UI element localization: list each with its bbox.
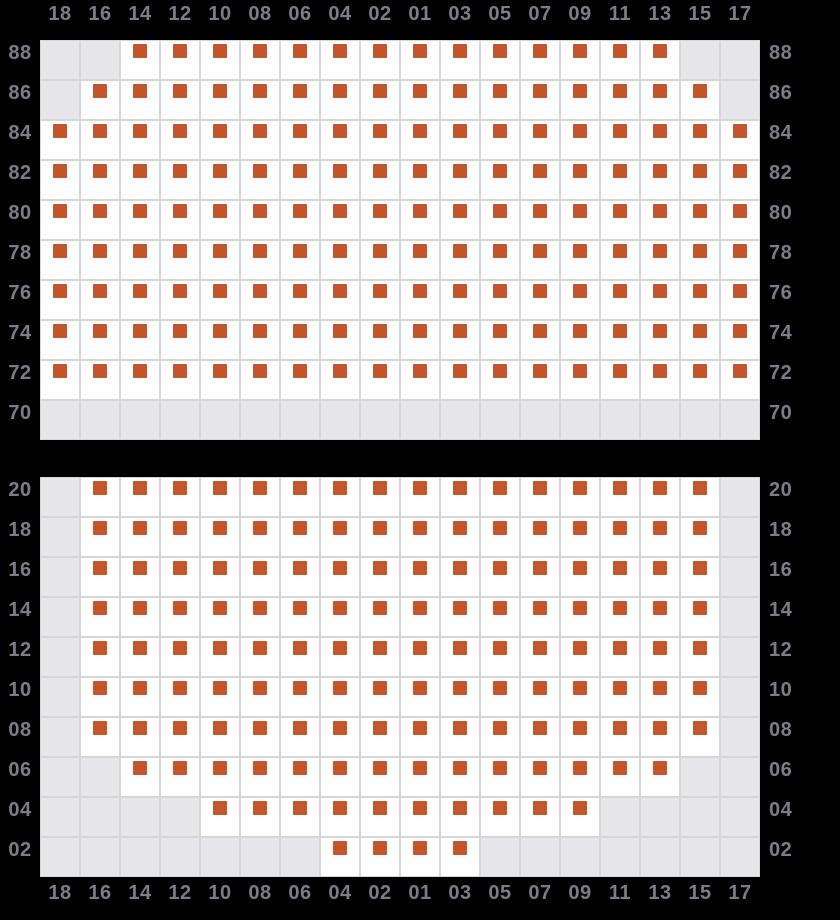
seat-cell[interactable]: [320, 120, 360, 160]
seat-cell[interactable]: [400, 40, 440, 80]
seat-cell[interactable]: [80, 557, 120, 597]
seat-cell[interactable]: [240, 597, 280, 637]
seat-cell[interactable]: [240, 200, 280, 240]
seat-cell[interactable]: [600, 160, 640, 200]
seat-cell[interactable]: [520, 517, 560, 557]
seat-cell[interactable]: [720, 240, 760, 280]
seat-cell[interactable]: [600, 677, 640, 717]
seat-cell[interactable]: [520, 120, 560, 160]
seat-cell[interactable]: [80, 160, 120, 200]
seat-cell[interactable]: [200, 517, 240, 557]
seat-cell[interactable]: [200, 557, 240, 597]
seat-cell[interactable]: [400, 80, 440, 120]
seat-cell[interactable]: [280, 677, 320, 717]
seat-cell[interactable]: [520, 477, 560, 517]
seat-cell[interactable]: [560, 637, 600, 677]
seat-cell[interactable]: [320, 80, 360, 120]
seat-cell[interactable]: [80, 280, 120, 320]
seat-cell[interactable]: [680, 280, 720, 320]
seat-cell[interactable]: [120, 200, 160, 240]
seat-cell[interactable]: [240, 320, 280, 360]
seat-cell[interactable]: [160, 557, 200, 597]
seat-cell[interactable]: [200, 240, 240, 280]
seat-cell[interactable]: [320, 240, 360, 280]
seat-cell[interactable]: [360, 80, 400, 120]
seat-cell[interactable]: [600, 200, 640, 240]
seat-cell[interactable]: [440, 160, 480, 200]
seat-cell[interactable]: [520, 160, 560, 200]
seat-cell[interactable]: [200, 320, 240, 360]
seat-cell[interactable]: [560, 677, 600, 717]
seat-cell[interactable]: [440, 120, 480, 160]
seat-cell[interactable]: [360, 360, 400, 400]
seat-cell[interactable]: [40, 160, 80, 200]
seat-cell[interactable]: [280, 40, 320, 80]
seat-cell[interactable]: [680, 477, 720, 517]
seat-cell[interactable]: [320, 677, 360, 717]
seat-cell[interactable]: [600, 517, 640, 557]
seat-cell[interactable]: [720, 160, 760, 200]
seat-cell[interactable]: [40, 240, 80, 280]
seat-cell[interactable]: [320, 200, 360, 240]
seat-cell[interactable]: [680, 677, 720, 717]
seat-cell[interactable]: [480, 517, 520, 557]
seat-cell[interactable]: [680, 120, 720, 160]
seat-cell[interactable]: [480, 280, 520, 320]
seat-cell[interactable]: [640, 477, 680, 517]
seat-cell[interactable]: [480, 797, 520, 837]
seat-cell[interactable]: [240, 757, 280, 797]
seat-cell[interactable]: [720, 200, 760, 240]
seat-cell[interactable]: [720, 280, 760, 320]
seat-cell[interactable]: [80, 517, 120, 557]
seat-cell[interactable]: [560, 160, 600, 200]
seat-cell[interactable]: [480, 637, 520, 677]
seat-cell[interactable]: [160, 280, 200, 320]
seat-cell[interactable]: [520, 80, 560, 120]
seat-cell[interactable]: [200, 797, 240, 837]
seat-cell[interactable]: [280, 360, 320, 400]
seat-cell[interactable]: [600, 40, 640, 80]
seat-cell[interactable]: [520, 240, 560, 280]
seat-cell[interactable]: [600, 717, 640, 757]
seat-cell[interactable]: [640, 517, 680, 557]
seat-cell[interactable]: [640, 120, 680, 160]
seat-cell[interactable]: [640, 717, 680, 757]
seat-cell[interactable]: [400, 360, 440, 400]
seat-cell[interactable]: [560, 320, 600, 360]
seat-cell[interactable]: [400, 280, 440, 320]
seat-cell[interactable]: [720, 120, 760, 160]
seat-cell[interactable]: [280, 597, 320, 637]
seat-cell[interactable]: [480, 160, 520, 200]
seat-cell[interactable]: [720, 360, 760, 400]
seat-cell[interactable]: [360, 837, 400, 877]
seat-cell[interactable]: [120, 557, 160, 597]
seat-cell[interactable]: [80, 120, 120, 160]
seat-cell[interactable]: [640, 40, 680, 80]
seat-cell[interactable]: [600, 597, 640, 637]
seat-cell[interactable]: [560, 80, 600, 120]
seat-cell[interactable]: [600, 477, 640, 517]
seat-cell[interactable]: [320, 557, 360, 597]
seat-cell[interactable]: [120, 120, 160, 160]
seat-cell[interactable]: [640, 280, 680, 320]
seat-cell[interactable]: [320, 837, 360, 877]
seat-cell[interactable]: [520, 360, 560, 400]
seat-cell[interactable]: [560, 477, 600, 517]
seat-cell[interactable]: [120, 160, 160, 200]
seat-cell[interactable]: [280, 280, 320, 320]
seat-cell[interactable]: [680, 240, 720, 280]
seat-cell[interactable]: [680, 160, 720, 200]
seat-cell[interactable]: [240, 120, 280, 160]
seat-cell[interactable]: [120, 517, 160, 557]
seat-cell[interactable]: [640, 637, 680, 677]
seat-cell[interactable]: [640, 557, 680, 597]
seat-cell[interactable]: [400, 757, 440, 797]
seat-cell[interactable]: [520, 40, 560, 80]
seat-cell[interactable]: [480, 320, 520, 360]
seat-cell[interactable]: [280, 200, 320, 240]
seat-cell[interactable]: [680, 320, 720, 360]
seat-cell[interactable]: [200, 200, 240, 240]
seat-cell[interactable]: [160, 40, 200, 80]
seat-cell[interactable]: [560, 240, 600, 280]
seat-cell[interactable]: [440, 80, 480, 120]
seat-cell[interactable]: [560, 717, 600, 757]
seat-cell[interactable]: [240, 160, 280, 200]
seat-cell[interactable]: [600, 240, 640, 280]
seat-cell[interactable]: [600, 320, 640, 360]
seat-cell[interactable]: [600, 80, 640, 120]
seat-cell[interactable]: [440, 517, 480, 557]
seat-cell[interactable]: [40, 200, 80, 240]
seat-cell[interactable]: [680, 517, 720, 557]
seat-cell[interactable]: [240, 797, 280, 837]
seat-cell[interactable]: [200, 280, 240, 320]
seat-cell[interactable]: [160, 637, 200, 677]
seat-cell[interactable]: [160, 360, 200, 400]
seat-cell[interactable]: [680, 717, 720, 757]
seat-cell[interactable]: [80, 200, 120, 240]
seat-cell[interactable]: [160, 200, 200, 240]
seat-cell[interactable]: [360, 517, 400, 557]
seat-cell[interactable]: [80, 240, 120, 280]
seat-cell[interactable]: [480, 360, 520, 400]
seat-cell[interactable]: [240, 677, 280, 717]
seat-cell[interactable]: [360, 797, 400, 837]
seat-cell[interactable]: [280, 717, 320, 757]
seat-cell[interactable]: [440, 360, 480, 400]
seat-cell[interactable]: [560, 360, 600, 400]
seat-cell[interactable]: [160, 517, 200, 557]
seat-cell[interactable]: [200, 637, 240, 677]
upper-seat-grid: [40, 40, 760, 440]
seat-cell[interactable]: [400, 517, 440, 557]
seat-cell[interactable]: [480, 557, 520, 597]
seat-cell[interactable]: [600, 757, 640, 797]
seat-cell[interactable]: [120, 477, 160, 517]
seat-cell[interactable]: [440, 797, 480, 837]
seat-cell[interactable]: [440, 557, 480, 597]
seat-cell[interactable]: [440, 717, 480, 757]
seat-cell[interactable]: [360, 160, 400, 200]
seat-cell[interactable]: [680, 360, 720, 400]
seat-cell[interactable]: [480, 677, 520, 717]
seat-cell[interactable]: [600, 120, 640, 160]
seat-cell[interactable]: [400, 477, 440, 517]
seat-cell[interactable]: [360, 240, 400, 280]
seat-cell[interactable]: [160, 80, 200, 120]
seat-cell[interactable]: [120, 757, 160, 797]
seat-cell[interactable]: [520, 757, 560, 797]
seat-cell[interactable]: [560, 120, 600, 160]
seat-cell[interactable]: [360, 637, 400, 677]
seat-cell[interactable]: [520, 557, 560, 597]
seat-cell[interactable]: [240, 557, 280, 597]
seat-cell[interactable]: [200, 40, 240, 80]
seat-cell[interactable]: [80, 360, 120, 400]
seat-cell[interactable]: [320, 320, 360, 360]
seat-cell[interactable]: [240, 637, 280, 677]
seat-cell[interactable]: [320, 477, 360, 517]
seat-cell[interactable]: [160, 717, 200, 757]
seat-cell[interactable]: [360, 120, 400, 160]
seat-marker-icon: [613, 681, 627, 695]
seat-cell[interactable]: [400, 797, 440, 837]
seat-cell[interactable]: [440, 320, 480, 360]
seat-cell[interactable]: [360, 40, 400, 80]
seat-cell[interactable]: [240, 80, 280, 120]
seat-cell[interactable]: [440, 200, 480, 240]
seat-cell[interactable]: [120, 360, 160, 400]
seat-cell[interactable]: [360, 477, 400, 517]
seat-cell[interactable]: [400, 120, 440, 160]
seat-cell[interactable]: [440, 757, 480, 797]
seat-cell[interactable]: [400, 557, 440, 597]
seat-cell[interactable]: [320, 40, 360, 80]
seat-cell[interactable]: [520, 200, 560, 240]
seat-cell[interactable]: [240, 517, 280, 557]
seat-cell[interactable]: [200, 677, 240, 717]
seat-cell[interactable]: [560, 517, 600, 557]
seat-cell[interactable]: [160, 477, 200, 517]
seat-cell[interactable]: [400, 240, 440, 280]
seat-cell[interactable]: [320, 160, 360, 200]
seat-cell[interactable]: [640, 757, 680, 797]
seat-cell[interactable]: [400, 320, 440, 360]
seat-cell[interactable]: [200, 80, 240, 120]
seat-cell[interactable]: [320, 757, 360, 797]
seat-cell[interactable]: [560, 280, 600, 320]
seat-cell[interactable]: [400, 837, 440, 877]
seat-cell[interactable]: [240, 360, 280, 400]
seat-cell[interactable]: [120, 40, 160, 80]
seat-cell[interactable]: [640, 320, 680, 360]
seat-cell[interactable]: [440, 677, 480, 717]
seat-cell[interactable]: [680, 80, 720, 120]
seat-cell[interactable]: [400, 597, 440, 637]
seat-cell[interactable]: [440, 637, 480, 677]
seat-cell[interactable]: [520, 597, 560, 637]
seat-cell[interactable]: [120, 717, 160, 757]
seat-cell[interactable]: [40, 280, 80, 320]
seat-cell[interactable]: [360, 200, 400, 240]
seat-cell[interactable]: [240, 717, 280, 757]
seat-cell[interactable]: [160, 160, 200, 200]
seat-cell[interactable]: [440, 837, 480, 877]
seat-cell[interactable]: [360, 280, 400, 320]
seat-cell[interactable]: [40, 320, 80, 360]
seat-cell[interactable]: [480, 477, 520, 517]
seat-cell[interactable]: [80, 677, 120, 717]
seat-cell[interactable]: [600, 557, 640, 597]
seat-cell[interactable]: [200, 717, 240, 757]
seat-cell[interactable]: [440, 477, 480, 517]
seat-cell[interactable]: [320, 360, 360, 400]
seat-cell[interactable]: [280, 80, 320, 120]
seat-cell[interactable]: [200, 160, 240, 200]
seat-cell[interactable]: [320, 717, 360, 757]
seat-cell[interactable]: [640, 597, 680, 637]
seat-cell[interactable]: [520, 677, 560, 717]
seat-cell[interactable]: [40, 120, 80, 160]
seat-cell[interactable]: [280, 240, 320, 280]
seat-cell[interactable]: [640, 160, 680, 200]
seat-cell[interactable]: [480, 717, 520, 757]
seat-cell[interactable]: [400, 637, 440, 677]
seat-cell[interactable]: [240, 280, 280, 320]
seat-cell[interactable]: [600, 280, 640, 320]
seat-cell[interactable]: [160, 240, 200, 280]
seat-cell[interactable]: [280, 320, 320, 360]
seat-cell[interactable]: [200, 477, 240, 517]
row-label: 06: [0, 757, 40, 797]
seat-cell[interactable]: [400, 677, 440, 717]
seat-cell[interactable]: [520, 280, 560, 320]
seat-cell[interactable]: [80, 477, 120, 517]
seat-cell[interactable]: [480, 240, 520, 280]
seat-cell[interactable]: [80, 637, 120, 677]
seat-cell[interactable]: [480, 120, 520, 160]
seat-cell[interactable]: [440, 40, 480, 80]
seat-cell[interactable]: [240, 477, 280, 517]
seat-cell[interactable]: [400, 200, 440, 240]
seat-cell[interactable]: [720, 320, 760, 360]
seat-cell[interactable]: [600, 637, 640, 677]
seat-cell[interactable]: [480, 80, 520, 120]
seat-cell[interactable]: [280, 120, 320, 160]
seat-cell[interactable]: [280, 557, 320, 597]
seat-cell[interactable]: [560, 597, 600, 637]
seat-cell[interactable]: [320, 797, 360, 837]
seat-cell[interactable]: [160, 757, 200, 797]
seat-cell[interactable]: [120, 240, 160, 280]
seat-cell[interactable]: [200, 757, 240, 797]
seat-cell[interactable]: [320, 637, 360, 677]
seat-cell[interactable]: [280, 757, 320, 797]
seat-cell[interactable]: [680, 557, 720, 597]
seat-cell[interactable]: [560, 757, 600, 797]
seat-cell[interactable]: [360, 677, 400, 717]
seat-cell[interactable]: [80, 320, 120, 360]
seat-cell[interactable]: [80, 717, 120, 757]
seat-cell[interactable]: [120, 597, 160, 637]
seat-cell[interactable]: [560, 797, 600, 837]
seat-cell[interactable]: [680, 597, 720, 637]
seat-cell[interactable]: [440, 240, 480, 280]
seat-cell[interactable]: [320, 597, 360, 637]
seat-cell[interactable]: [640, 80, 680, 120]
seat-cell[interactable]: [80, 597, 120, 637]
seat-cell[interactable]: [240, 240, 280, 280]
seat-cell[interactable]: [280, 517, 320, 557]
seat-cell[interactable]: [560, 40, 600, 80]
seat-cell[interactable]: [120, 280, 160, 320]
seat-cell[interactable]: [640, 360, 680, 400]
seat-cell[interactable]: [280, 797, 320, 837]
seat-cell[interactable]: [640, 200, 680, 240]
seat-cell[interactable]: [320, 280, 360, 320]
seat-cell[interactable]: [560, 200, 600, 240]
seat-cell[interactable]: [280, 160, 320, 200]
seat-cell[interactable]: [480, 597, 520, 637]
seat-cell[interactable]: [160, 597, 200, 637]
seat-cell[interactable]: [240, 40, 280, 80]
seat-cell[interactable]: [560, 557, 600, 597]
seat-cell[interactable]: [480, 40, 520, 80]
seat-cell[interactable]: [200, 597, 240, 637]
seat-cell[interactable]: [520, 637, 560, 677]
seat-cell[interactable]: [280, 637, 320, 677]
seat-cell[interactable]: [120, 320, 160, 360]
seat-cell[interactable]: [640, 240, 680, 280]
seat-cell[interactable]: [280, 477, 320, 517]
seat-cell[interactable]: [440, 280, 480, 320]
seat-cell[interactable]: [360, 597, 400, 637]
seat-cell[interactable]: [360, 557, 400, 597]
seat-cell[interactable]: [480, 200, 520, 240]
seat-cell[interactable]: [440, 597, 480, 637]
seat-cell[interactable]: [360, 757, 400, 797]
seat-cell[interactable]: [360, 320, 400, 360]
seat-cell[interactable]: [160, 120, 200, 160]
seat-cell[interactable]: [480, 757, 520, 797]
seat-cell[interactable]: [400, 160, 440, 200]
seat-cell[interactable]: [200, 120, 240, 160]
seat-cell[interactable]: [120, 80, 160, 120]
seat-cell[interactable]: [120, 637, 160, 677]
seat-marker-icon: [333, 481, 347, 495]
seat-cell[interactable]: [160, 677, 200, 717]
seat-cell[interactable]: [640, 677, 680, 717]
seat-cell[interactable]: [80, 80, 120, 120]
seat-cell[interactable]: [600, 360, 640, 400]
seat-cell[interactable]: [520, 717, 560, 757]
seat-cell[interactable]: [680, 637, 720, 677]
seat-cell[interactable]: [40, 360, 80, 400]
seat-cell[interactable]: [520, 797, 560, 837]
seat-cell[interactable]: [680, 200, 720, 240]
seat-cell[interactable]: [320, 517, 360, 557]
seat-cell[interactable]: [360, 717, 400, 757]
seat-cell[interactable]: [520, 320, 560, 360]
seat-cell[interactable]: [160, 320, 200, 360]
seat-cell[interactable]: [400, 717, 440, 757]
seat-cell[interactable]: [120, 677, 160, 717]
seat-cell[interactable]: [200, 360, 240, 400]
